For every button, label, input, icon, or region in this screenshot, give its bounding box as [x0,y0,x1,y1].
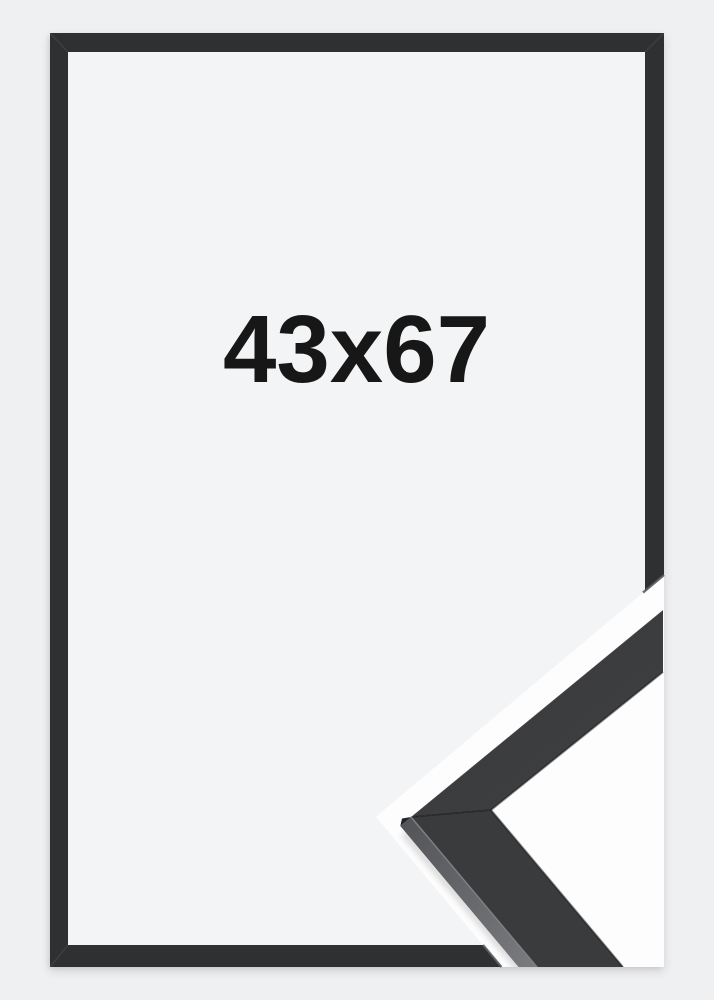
product-image: 43x67 [0,0,714,1000]
size-label: 43x67 [68,302,645,398]
frame-opening: 43x67 [68,52,645,945]
picture-frame-front-photo: 43x67 [50,33,664,967]
